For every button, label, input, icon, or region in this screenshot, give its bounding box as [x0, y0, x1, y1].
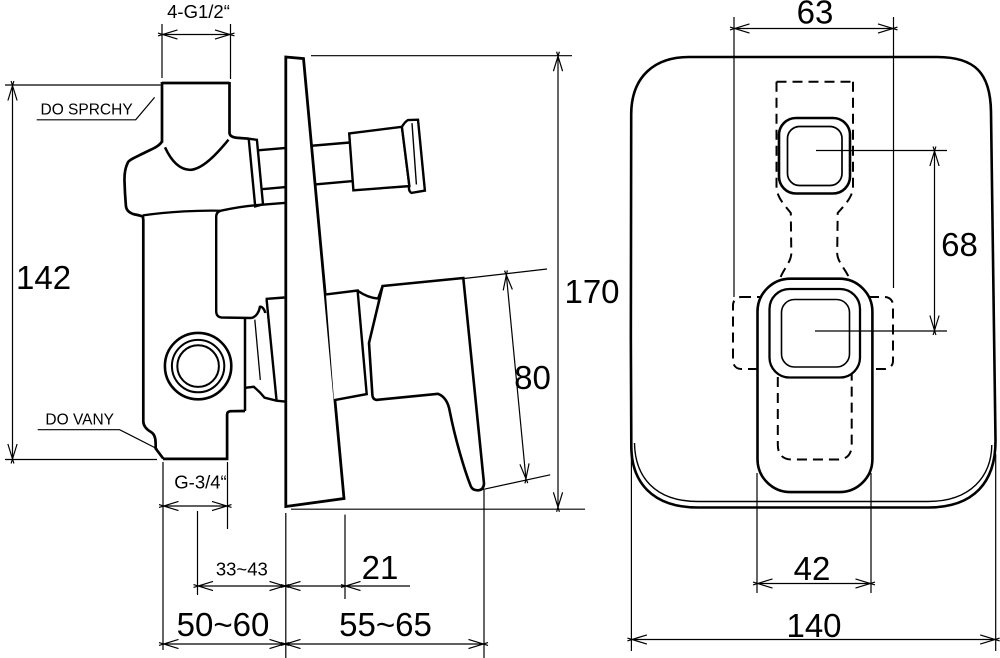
svg-text:4-G1/2“: 4-G1/2“ [167, 1, 230, 22]
svg-text:170: 170 [564, 273, 619, 310]
svg-text:50~60: 50~60 [177, 606, 270, 643]
svg-text:DO SPRCHY: DO SPRCHY [41, 102, 133, 119]
svg-text:42: 42 [794, 550, 831, 587]
svg-text:DO VANY: DO VANY [45, 412, 114, 429]
svg-text:142: 142 [16, 259, 71, 296]
svg-text:G-3/4“: G-3/4“ [174, 472, 226, 493]
svg-text:21: 21 [362, 549, 399, 586]
svg-text:63: 63 [797, 0, 834, 31]
svg-text:68: 68 [941, 226, 978, 263]
svg-text:80: 80 [514, 359, 551, 396]
svg-text:140: 140 [786, 607, 841, 644]
svg-text:33~43: 33~43 [216, 559, 268, 580]
svg-text:55~65: 55~65 [339, 606, 432, 643]
